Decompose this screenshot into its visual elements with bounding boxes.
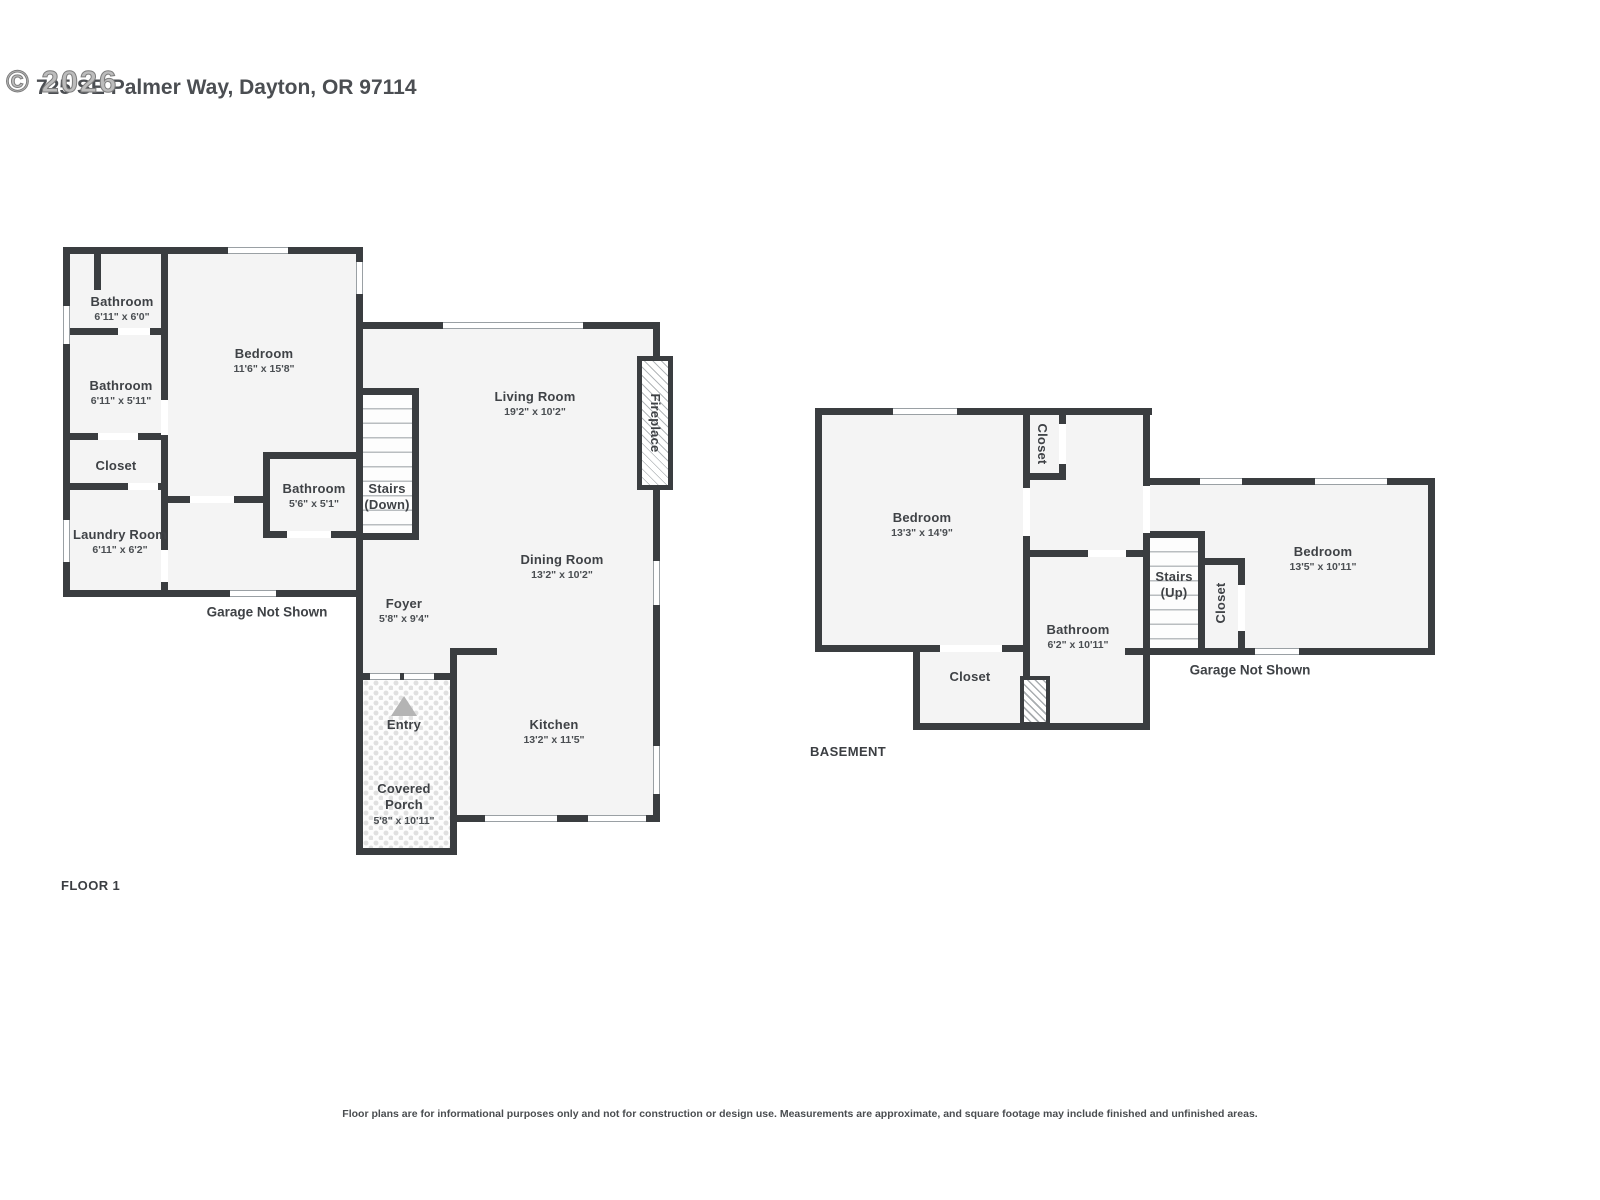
room-name: Entry [387,717,421,733]
room-name: Stairs [364,481,409,497]
room-label-bedroom: Bedroom 11'6" x 15'8" [233,346,294,378]
room-name: Closet [96,458,137,474]
wall [356,322,363,680]
window [1315,478,1387,485]
room-label-basement-stairs-up: Stairs (Up) [1155,569,1192,602]
wall [356,680,363,855]
room-name: Bedroom [233,346,294,362]
wall [450,648,457,855]
room-dims: 6'11" x 6'2" [73,543,167,559]
entry-arrow-icon [391,696,417,716]
room-label-laundry: Laundry Room 6'11" x 6'2" [73,527,167,559]
door-opening [1143,486,1150,533]
room-name: Bathroom [283,481,346,497]
wall [356,848,457,855]
room-name: Closet [1213,583,1229,624]
door-opening [287,531,331,538]
room-label-bathroom-a: Bathroom 6'11" x 6'0" [91,294,154,326]
wall [263,452,270,538]
room-label-living-room: Living Room 19'2" x 10'2" [495,389,576,421]
wall [1143,478,1435,485]
wall [450,648,497,655]
window [63,520,70,562]
garage-note-basement: Garage Not Shown [1190,663,1311,678]
room-sub: (Down) [364,497,409,513]
room-name: Kitchen [523,717,584,733]
basement-tag: BASEMENT [810,744,886,759]
window [653,746,660,794]
room-dims: 5'8" x 10'11" [368,813,440,829]
door-opening [161,400,168,435]
floor1-tag: FLOOR 1 [61,878,120,893]
door-opening [1255,648,1299,655]
door-opening [128,483,158,490]
fireplace-label: Fireplace [647,394,663,453]
room-dims: 13'2" x 11'5" [523,733,584,749]
window [893,408,957,415]
wall [1023,550,1150,557]
room-dims: 13'5" x 10'11" [1290,560,1357,576]
room-name: Covered Porch [368,781,440,814]
room-dims: 6'2" x 10'11" [1047,638,1110,654]
wall [1143,408,1150,730]
window [588,815,646,822]
wall [412,388,419,540]
room-label-foyer: Foyer 5'8" x 9'4" [379,596,429,628]
wall [63,590,363,597]
wall [263,452,363,459]
wall [1143,531,1205,538]
room-label-bathroom-b: Bathroom 6'11" x 5'11" [90,378,153,410]
room-label-stairs-down: Stairs (Down) [364,481,409,514]
room-dims: 5'8" x 9'4" [379,612,429,628]
room-dims: 6'11" x 6'0" [91,310,154,326]
wall [168,496,190,503]
door-opening [1238,585,1245,631]
garage-note-floor1: Garage Not Shown [207,605,328,620]
room-name: Bedroom [891,510,953,526]
room-name: Bathroom [1047,622,1110,638]
room-label-basement-closet-bottom: Closet [950,669,991,685]
footer-disclaimer: Floor plans are for informational purpos… [0,1108,1600,1120]
wall [815,408,1152,415]
room-label-entry: Entry [387,717,421,733]
window [653,561,660,605]
window [356,262,363,294]
room-name: Closet [950,669,991,685]
room-dims: 19'2" x 10'2" [495,405,576,421]
room-name: Fireplace [647,394,663,453]
door-opening [1059,424,1066,464]
window [443,322,583,329]
window [228,247,288,254]
room-label-bathroom-c: Bathroom 5'6" x 5'1" [283,481,346,513]
wall [1428,478,1435,655]
window [485,815,557,822]
room-name: Living Room [495,389,576,405]
room-name: Bathroom [91,294,154,310]
window [230,590,276,597]
door-opening [98,433,138,440]
room-label-basement-bedroom-a: Bedroom 13'3" x 14'9" [891,510,953,542]
room-label-basement-closet-top: Closet [1034,424,1050,465]
basement-hatched-door [1020,676,1050,726]
door-opening [1088,550,1126,557]
entry-door [370,673,400,680]
room-dims: 11'6" x 15'8" [233,362,294,378]
room-label-basement-bathroom: Bathroom 6'2" x 10'11" [1047,622,1110,654]
room-dims: 6'11" x 5'11" [90,394,153,410]
room-dims: 13'2" x 10'2" [520,568,603,584]
room-name: Closet [1034,424,1050,465]
room-name: Foyer [379,596,429,612]
room-label-dining-room: Dining Room 13'2" x 10'2" [520,552,603,584]
wall [356,533,419,540]
room-label-covered-porch: Covered Porch 5'8" x 10'11" [368,781,440,829]
room-name: Laundry Room [73,527,167,543]
wall [356,388,419,395]
wall [94,247,101,290]
room-label-closet: Closet [96,458,137,474]
wall [63,328,168,335]
room-sub: (Up) [1155,585,1192,601]
wall [234,496,263,503]
door-opening [190,496,234,503]
room-name: Bedroom [1290,544,1357,560]
basement-left-fill [815,408,1150,652]
wall [815,408,822,652]
window [1200,478,1242,485]
room-dims: 13'3" x 14'9" [891,526,953,542]
room-label-kitchen: Kitchen 13'2" x 11'5" [523,717,584,749]
room-label-basement-closet-mid: Closet [1213,583,1229,624]
room-dims: 5'6" x 5'1" [283,497,346,513]
wall [1198,538,1205,655]
room-label-basement-bedroom-b: Bedroom 13'5" x 10'11" [1290,544,1357,576]
window [63,306,70,344]
floor-plan-page: © 2026 725 SE Palmer Way, Dayton, OR 971… [0,0,1600,1200]
door-opening [940,645,1002,652]
door-opening [1023,488,1030,536]
wall [63,247,363,254]
wall [913,652,920,730]
room-name: Stairs [1155,569,1192,585]
room-name: Dining Room [520,552,603,568]
door-opening [118,328,150,335]
room-name: Bathroom [90,378,153,394]
copyright-watermark: © 2026 [6,64,118,100]
entry-door [404,673,434,680]
